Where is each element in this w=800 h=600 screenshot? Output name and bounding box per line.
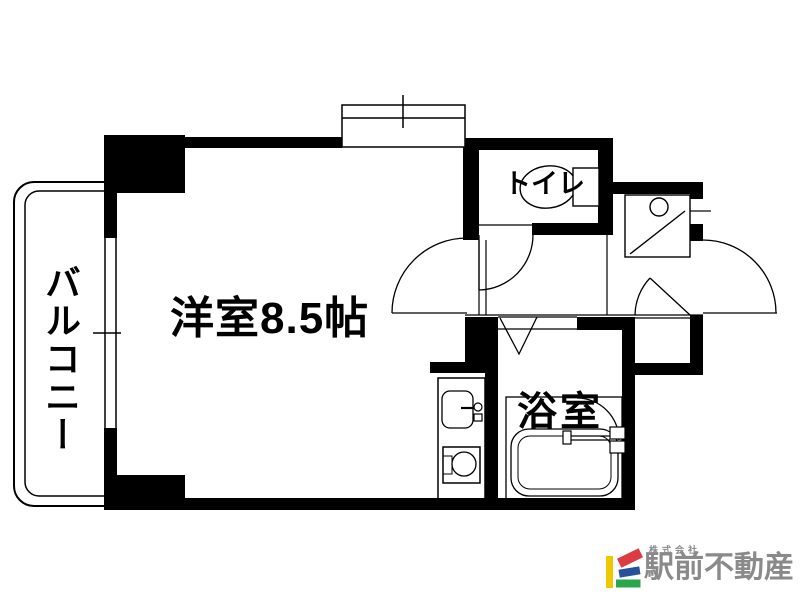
kitchen-faucet	[461, 403, 482, 421]
wall-hall-bottom	[577, 317, 635, 330]
wall-bottom	[185, 498, 635, 510]
kitchenette	[438, 378, 485, 499]
toilet-wall-bottom-right	[532, 223, 613, 235]
washer-drain-circle	[650, 198, 668, 216]
toilet-label: トイレ	[504, 171, 585, 198]
main-room-label: 洋室8.5帖	[170, 297, 369, 341]
kitchen-sink	[442, 391, 473, 428]
bathroom-wall-right	[622, 330, 635, 510]
entrance-door-swing	[703, 240, 777, 313]
wall-right-upper	[690, 193, 703, 199]
logo-bar-red	[617, 548, 643, 568]
closet-door-swing	[635, 278, 690, 315]
floor-lines	[465, 225, 703, 329]
logo-bar-blue	[619, 566, 641, 577]
wall-bottom-left-step	[117, 475, 185, 510]
bathroom-folding-door	[500, 317, 537, 354]
stove-burner	[452, 452, 476, 476]
logo-bar-yellow	[606, 556, 613, 588]
left-sliding-window	[93, 238, 121, 428]
toilet-door-swing	[479, 235, 533, 290]
wall-top	[104, 137, 342, 148]
logo-bar-green	[616, 580, 641, 588]
toilet-wall-top	[463, 138, 613, 150]
floorplan-canvas: 洋室8.5帖 バルコニー トイレ 浴室 株式会社 駅前不動産	[0, 0, 800, 600]
washing-machine-pan	[625, 195, 690, 257]
kitchen-counter	[438, 378, 485, 499]
company-name-label: 駅前不動産	[644, 553, 794, 583]
kitchen-stove	[443, 447, 480, 483]
toilet-wall-bottom-left	[463, 223, 479, 235]
bathroom-wall-left	[485, 317, 498, 510]
wall-left-lower	[104, 428, 117, 510]
toilet-wall-right	[598, 138, 613, 235]
doors	[392, 235, 777, 354]
stove-grill	[443, 456, 452, 474]
wall-laundry-top	[612, 182, 703, 194]
company-logo-mark	[606, 548, 643, 588]
wall-left-upper	[104, 148, 117, 238]
wall-kitchen-stub	[430, 362, 482, 373]
balcony-label: バルコニー	[42, 264, 78, 454]
wall-right-mid	[690, 224, 703, 241]
wall-closet-bottom	[635, 363, 703, 375]
floorplan-drawing	[0, 0, 800, 600]
bathroom-label: 浴室	[517, 392, 603, 432]
room-door-swing	[392, 238, 467, 313]
top-window	[342, 95, 465, 147]
